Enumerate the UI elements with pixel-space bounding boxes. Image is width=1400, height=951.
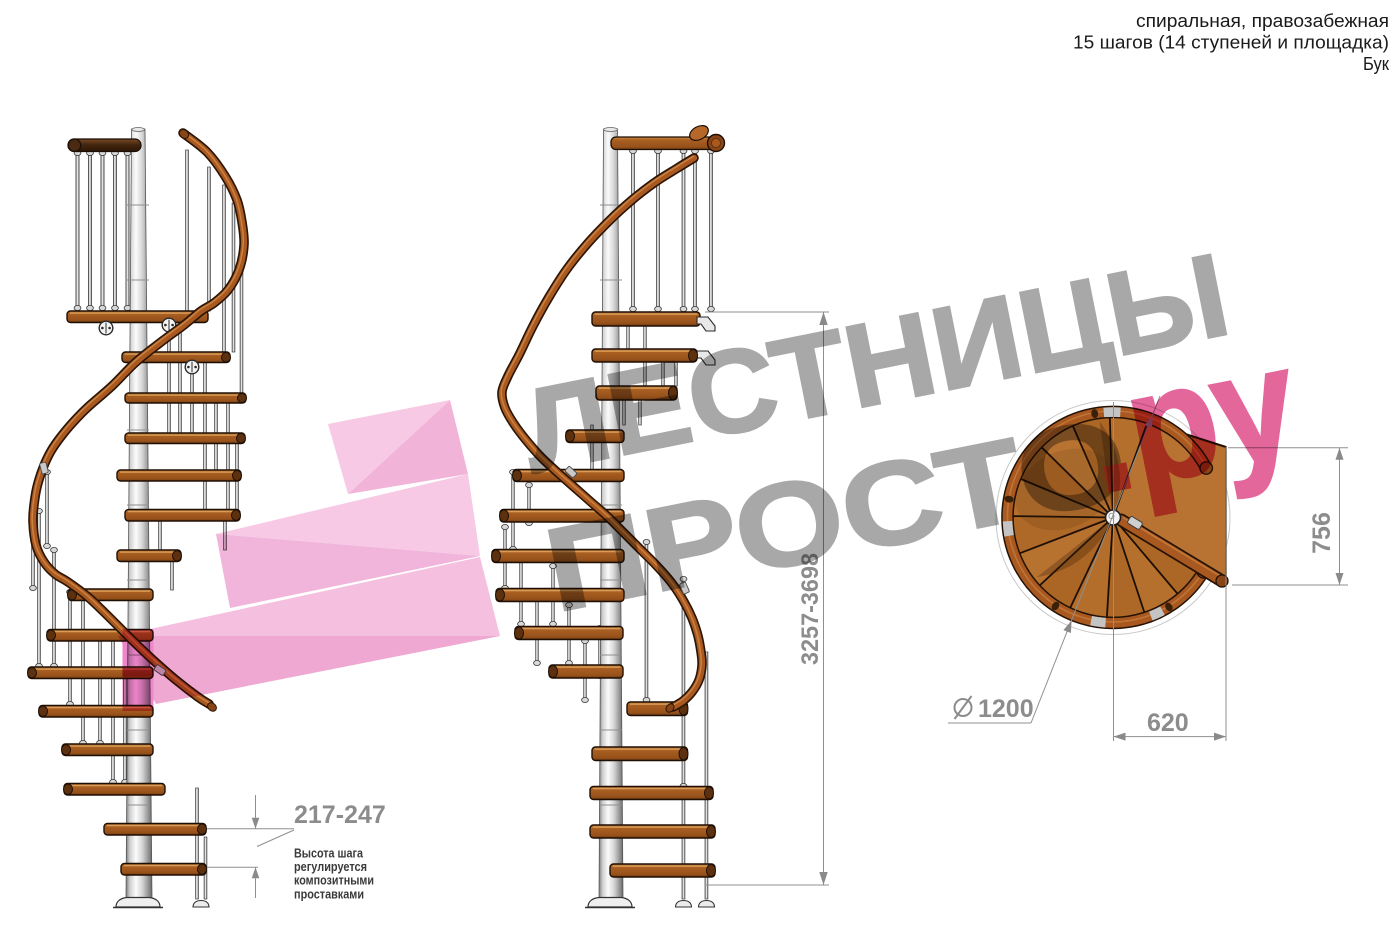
- svg-text:15 шагов (14 ступеней и площад: 15 шагов (14 ступеней и площадка): [1073, 33, 1389, 53]
- svg-text:Бук: Бук: [1363, 54, 1389, 74]
- svg-text:Высота шага: Высота шага: [294, 847, 364, 861]
- svg-text:проставками: проставками: [294, 887, 364, 901]
- svg-text:1200: 1200: [978, 695, 1034, 723]
- svg-text:композитными: композитными: [294, 874, 374, 888]
- svg-text:217-247: 217-247: [294, 801, 386, 829]
- svg-text:спиральная, правозабежная: спиральная, правозабежная: [1136, 11, 1389, 31]
- svg-text:756: 756: [1308, 512, 1336, 554]
- svg-text:620: 620: [1147, 709, 1189, 737]
- svg-text:регулируется: регулируется: [294, 860, 367, 874]
